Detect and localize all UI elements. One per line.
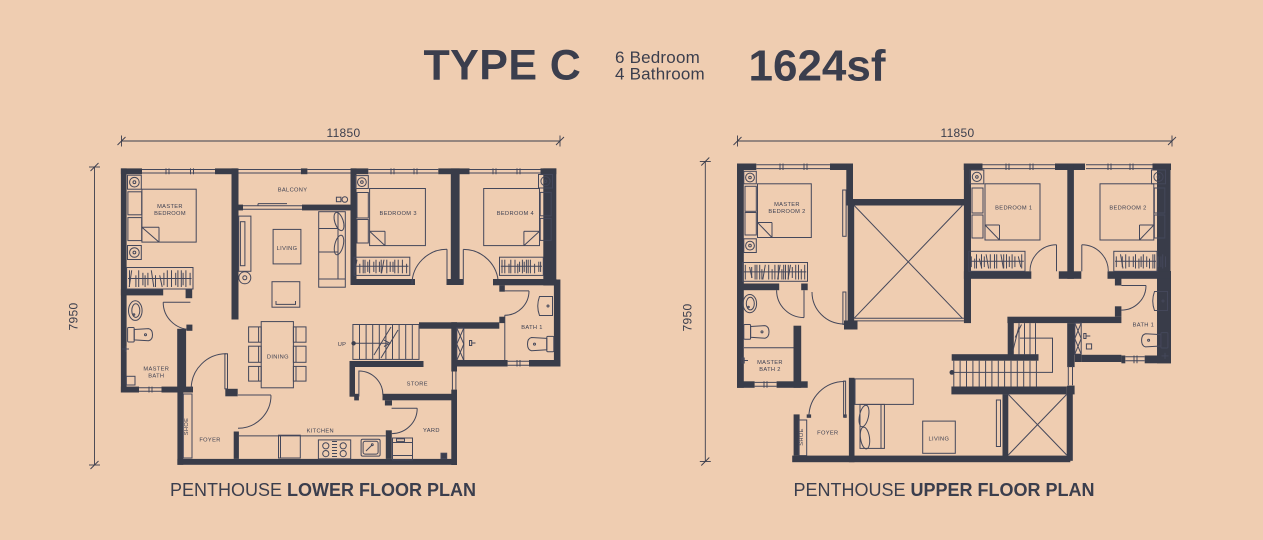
svg-text:BATH 2: BATH 2 [759,367,781,373]
svg-text:4 Bathroom: 4 Bathroom [615,65,705,84]
svg-text:MASTER: MASTER [157,204,183,210]
svg-text:LIVING: LIVING [929,436,950,442]
svg-text:FOYER: FOYER [817,430,838,436]
svg-text:SHOE: SHOE [799,428,805,446]
svg-text:MASTER: MASTER [757,360,783,366]
svg-text:11850: 11850 [941,126,975,140]
svg-text:PENTHOUSE LOWER FLOOR PLAN: PENTHOUSE LOWER FLOOR PLAN [170,480,476,500]
svg-text:FOYER: FOYER [199,438,220,444]
svg-text:BATH 1: BATH 1 [1133,323,1155,329]
svg-text:BEDROOM: BEDROOM [154,211,186,217]
svg-text:DINING: DINING [267,354,289,360]
svg-text:BATH 1: BATH 1 [521,325,543,331]
svg-text:MASTER: MASTER [774,202,800,208]
svg-text:LIVING: LIVING [277,246,298,252]
svg-text:BEDROOM 3: BEDROOM 3 [380,211,417,217]
svg-text:11850: 11850 [327,126,361,140]
svg-text:STORE: STORE [407,382,428,388]
svg-text:BEDROOM 4: BEDROOM 4 [497,211,534,217]
svg-text:MASTER: MASTER [143,367,169,373]
svg-text:BEDROOM 1: BEDROOM 1 [995,206,1032,212]
svg-text:SHOE: SHOE [184,418,190,436]
svg-text:YARD: YARD [423,428,440,434]
svg-text:BEDROOM 2: BEDROOM 2 [768,209,805,215]
svg-text:UP: UP [338,342,347,348]
svg-text:BEDROOM 2: BEDROOM 2 [1109,206,1146,212]
svg-text:1624sf: 1624sf [749,42,886,91]
svg-text:7950: 7950 [681,304,695,332]
svg-text:BATH: BATH [148,374,164,380]
svg-text:BALCONY: BALCONY [278,188,308,194]
svg-text:PENTHOUSE UPPER FLOOR PLAN: PENTHOUSE UPPER FLOOR PLAN [793,480,1094,500]
svg-text:TYPE C: TYPE C [424,42,582,90]
svg-text:7950: 7950 [67,303,81,331]
svg-text:KITCHEN: KITCHEN [307,428,334,434]
